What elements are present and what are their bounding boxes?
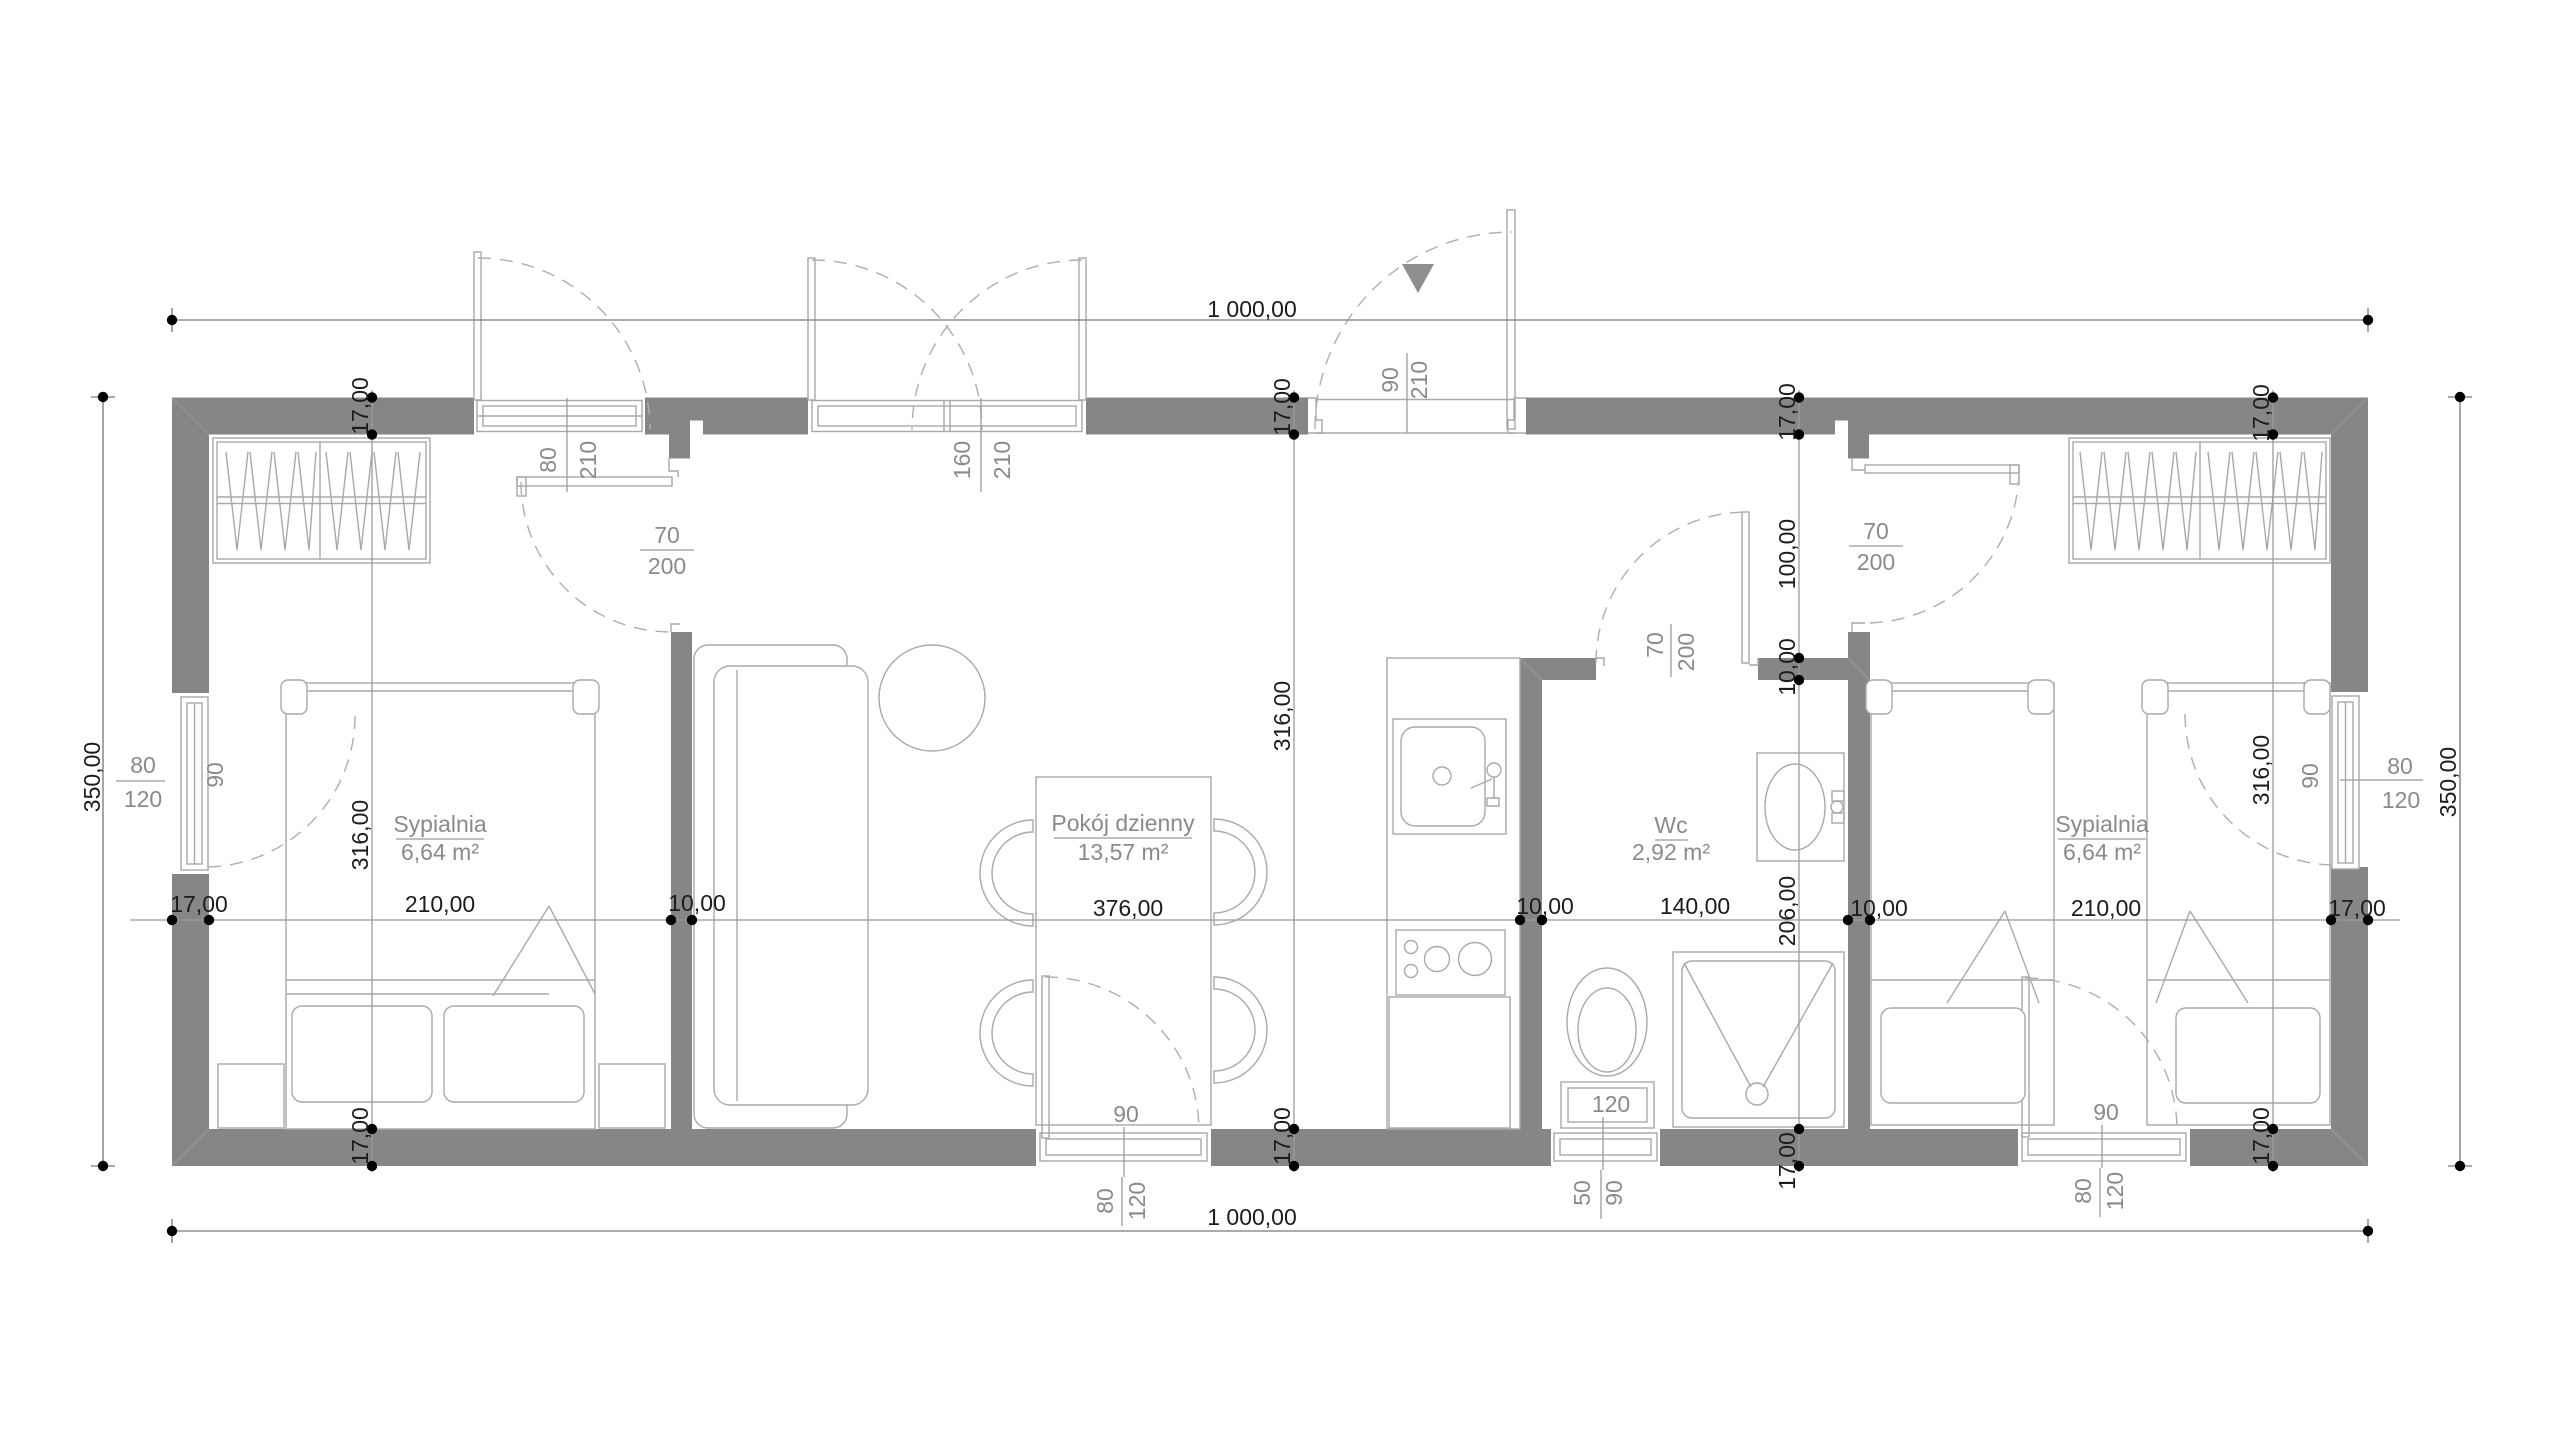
svg-text:210: 210 — [575, 441, 601, 479]
svg-text:210: 210 — [1406, 361, 1432, 399]
svg-text:17,00: 17,00 — [1269, 378, 1295, 436]
svg-text:17,00: 17,00 — [1774, 1132, 1800, 1190]
svg-text:70: 70 — [1642, 632, 1668, 658]
svg-text:90: 90 — [1113, 1101, 1139, 1127]
svg-text:80: 80 — [535, 447, 561, 473]
svg-text:120: 120 — [2102, 1172, 2128, 1210]
svg-text:50: 50 — [1569, 1180, 1595, 1206]
svg-text:350,00: 350,00 — [79, 742, 105, 812]
svg-text:17,00: 17,00 — [1269, 1107, 1295, 1165]
svg-text:140,00: 140,00 — [1660, 893, 1730, 919]
svg-text:Sypialnia: Sypialnia — [393, 811, 487, 837]
svg-text:200: 200 — [1857, 549, 1895, 575]
svg-text:210,00: 210,00 — [405, 891, 475, 917]
svg-text:316,00: 316,00 — [2248, 735, 2274, 805]
svg-text:17,00: 17,00 — [2328, 895, 2386, 921]
svg-text:10,00: 10,00 — [1774, 638, 1800, 696]
svg-text:17,00: 17,00 — [170, 891, 228, 917]
svg-text:70: 70 — [1863, 518, 1889, 544]
svg-text:1 000,00: 1 000,00 — [1207, 296, 1297, 322]
svg-text:100,00: 100,00 — [1774, 519, 1800, 589]
svg-text:120: 120 — [124, 786, 162, 812]
svg-text:80: 80 — [1092, 1188, 1118, 1214]
svg-text:13,57 m²: 13,57 m² — [1078, 839, 1169, 865]
svg-text:10,00: 10,00 — [668, 890, 726, 916]
svg-text:120: 120 — [1592, 1091, 1630, 1117]
svg-text:80: 80 — [2070, 1178, 2096, 1204]
svg-text:17,00: 17,00 — [2248, 384, 2274, 442]
svg-text:90: 90 — [202, 762, 228, 788]
svg-text:210,00: 210,00 — [2071, 895, 2141, 921]
svg-text:316,00: 316,00 — [347, 800, 373, 870]
svg-text:Pokój dzienny: Pokój dzienny — [1051, 810, 1195, 836]
svg-text:2,92 m²: 2,92 m² — [1632, 839, 1710, 865]
svg-text:120: 120 — [1124, 1182, 1150, 1220]
svg-text:6,64 m²: 6,64 m² — [2063, 839, 2141, 865]
svg-text:Sypialnia: Sypialnia — [2055, 811, 2149, 837]
svg-text:10,00: 10,00 — [1516, 893, 1574, 919]
svg-text:17,00: 17,00 — [347, 377, 373, 435]
svg-text:160: 160 — [949, 441, 975, 479]
svg-text:350,00: 350,00 — [2435, 747, 2461, 817]
svg-text:376,00: 376,00 — [1093, 895, 1163, 921]
svg-text:210: 210 — [989, 441, 1015, 479]
svg-text:200: 200 — [648, 553, 686, 579]
svg-text:70: 70 — [654, 522, 680, 548]
svg-text:120: 120 — [2382, 787, 2420, 813]
svg-text:17,00: 17,00 — [1774, 383, 1800, 441]
svg-text:90: 90 — [2093, 1099, 2119, 1125]
svg-text:316,00: 316,00 — [1269, 681, 1295, 751]
svg-text:10,00: 10,00 — [1850, 895, 1908, 921]
svg-text:17,00: 17,00 — [2248, 1107, 2274, 1165]
svg-text:90: 90 — [1377, 367, 1403, 393]
svg-text:80: 80 — [130, 752, 156, 778]
svg-text:80: 80 — [2387, 753, 2413, 779]
svg-text:90: 90 — [1601, 1180, 1627, 1206]
svg-text:6,64 m²: 6,64 m² — [401, 839, 479, 865]
svg-text:1 000,00: 1 000,00 — [1207, 1204, 1297, 1230]
svg-text:Wc: Wc — [1654, 812, 1687, 838]
svg-text:17,00: 17,00 — [347, 1107, 373, 1165]
svg-text:90: 90 — [2297, 763, 2323, 789]
svg-text:200: 200 — [1673, 633, 1699, 671]
svg-text:206,00: 206,00 — [1774, 876, 1800, 946]
